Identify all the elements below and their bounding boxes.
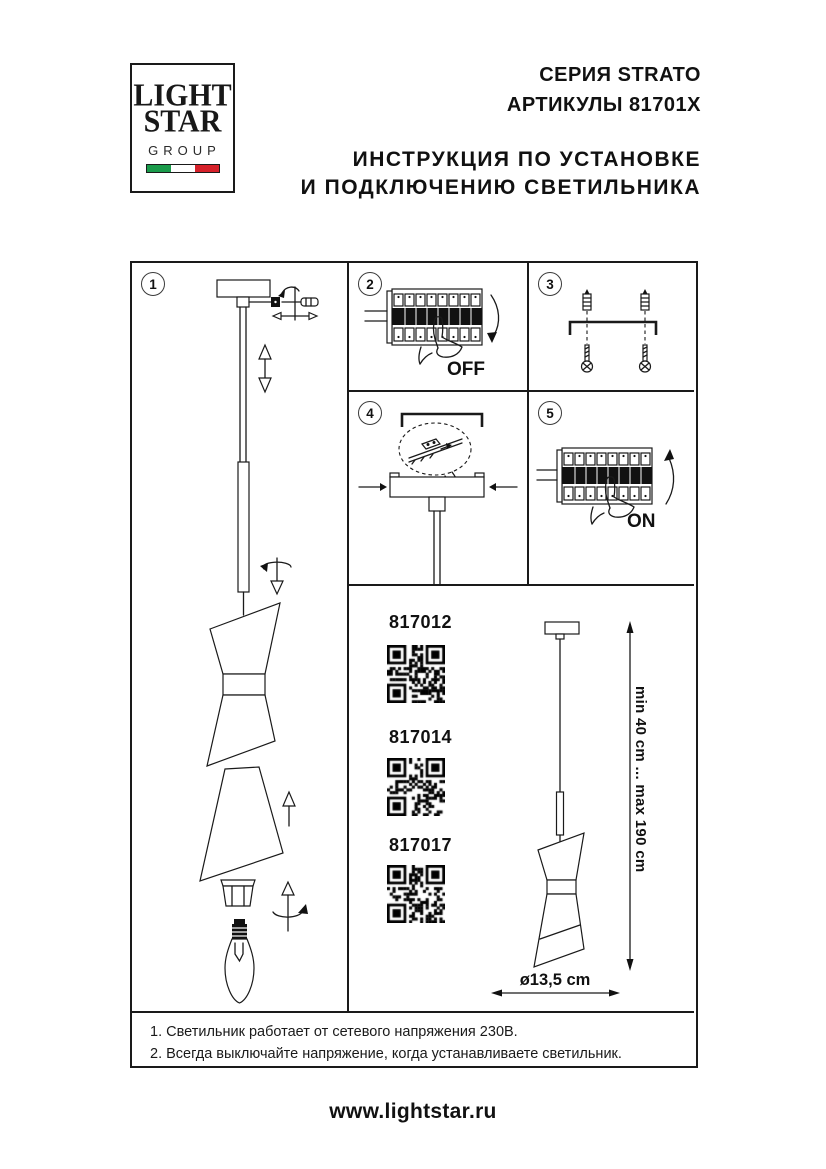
doc-header: СЕРИЯ STRATO АРТИКУЛЫ 81701X ИНСТРУКЦИЯ … [301,60,701,202]
curved-up-arrow-icon [664,449,674,504]
diameter-dimension-label: ø13,5 cm [520,971,591,989]
doc-title-line1: ИНСТРУКЦИЯ ПО УСТАНОВКЕ [301,146,701,174]
doc-title-line2: И ПОДКЛЮЧЕНИЮ СВЕТИЛЬНИКА [301,174,701,202]
mounting-bracket-drawing [402,414,482,427]
step-number-1: 1 [141,272,165,296]
footnote-2: 2. Всегда выключайте напряжение, когда у… [150,1043,684,1065]
diameter-dimension-arrow [491,990,620,997]
hourglass-shade-drawing [534,833,584,967]
wall-anchor-icon [641,289,649,310]
step-number-2: 2 [358,272,382,296]
step-number-3: 3 [538,272,562,296]
ceiling-canopy-drawing [545,622,579,634]
screwdriver-icon [282,298,318,306]
off-label: OFF [447,359,485,380]
series-label: СЕРИЯ STRATO [301,60,701,90]
step-number-5: 5 [538,401,562,425]
rotate-arrow-icon [260,558,291,594]
logo-word-group: GROUP [148,143,221,158]
circuit-breaker-drawing [537,448,652,504]
on-label: ON [627,511,656,532]
footnote-1: 1. Светильник работает от сетевого напря… [150,1021,684,1043]
screw-icon [582,345,593,372]
doc-title: ИНСТРУКЦИЯ ПО УСТАНОВКЕ И ПОДКЛЮЧЕНИЮ СВ… [301,146,701,202]
footnotes: 1. Светильник работает от сетевого напря… [132,1011,694,1066]
lightstar-logo: LIGHT STAR GROUP [130,63,235,193]
rotate-arrow-icon [273,882,308,931]
products-dimensions-panel: 817012 817014 817017 [349,586,694,1011]
step-panel-2: 2 [349,263,529,392]
ceiling-canopy-drawing [390,477,484,497]
step-panel-5: 5 [529,392,694,586]
up-down-arrow-icon [259,345,271,392]
flag-red-segment [195,165,219,172]
italy-flag-stripe [146,164,220,173]
flag-white-segment [171,165,195,172]
step-panel-3: 3 [529,263,694,392]
socket-cup-drawing [221,880,255,906]
mounting-bracket-drawing [570,322,656,335]
instruction-leaflet-page: { "logo": { "line1": "LIGHT", "line2": "… [0,0,826,1169]
hourglass-shade-drawing [207,603,280,766]
curved-down-arrow-icon [487,295,499,343]
step1-lamp-assembly-drawing [132,263,347,1011]
step-panel-1: 1 [132,263,349,1011]
cone-shade-drawing [200,767,283,881]
articles-label: АРТИКУЛЫ 81701X [301,90,701,120]
inward-arrow-icon [489,483,517,491]
step-number-4: 4 [358,401,382,425]
ceiling-canopy-drawing [217,280,270,297]
logo-word-star: STAR [144,108,222,135]
step-panel-4: 4 [349,392,529,586]
height-dimension-label: min 40 cm ... max 190 cm [632,686,649,872]
flag-green-segment [147,165,171,172]
light-bulb-drawing [225,919,254,1003]
screw-icon [640,345,651,372]
up-arrow-icon [283,792,295,826]
circuit-breaker-drawing [365,289,482,345]
inward-arrow-icon [359,483,387,491]
wall-anchor-icon [583,289,591,310]
instruction-grid: 1 [130,261,698,1068]
website-url: www.lightstar.ru [0,1100,826,1124]
